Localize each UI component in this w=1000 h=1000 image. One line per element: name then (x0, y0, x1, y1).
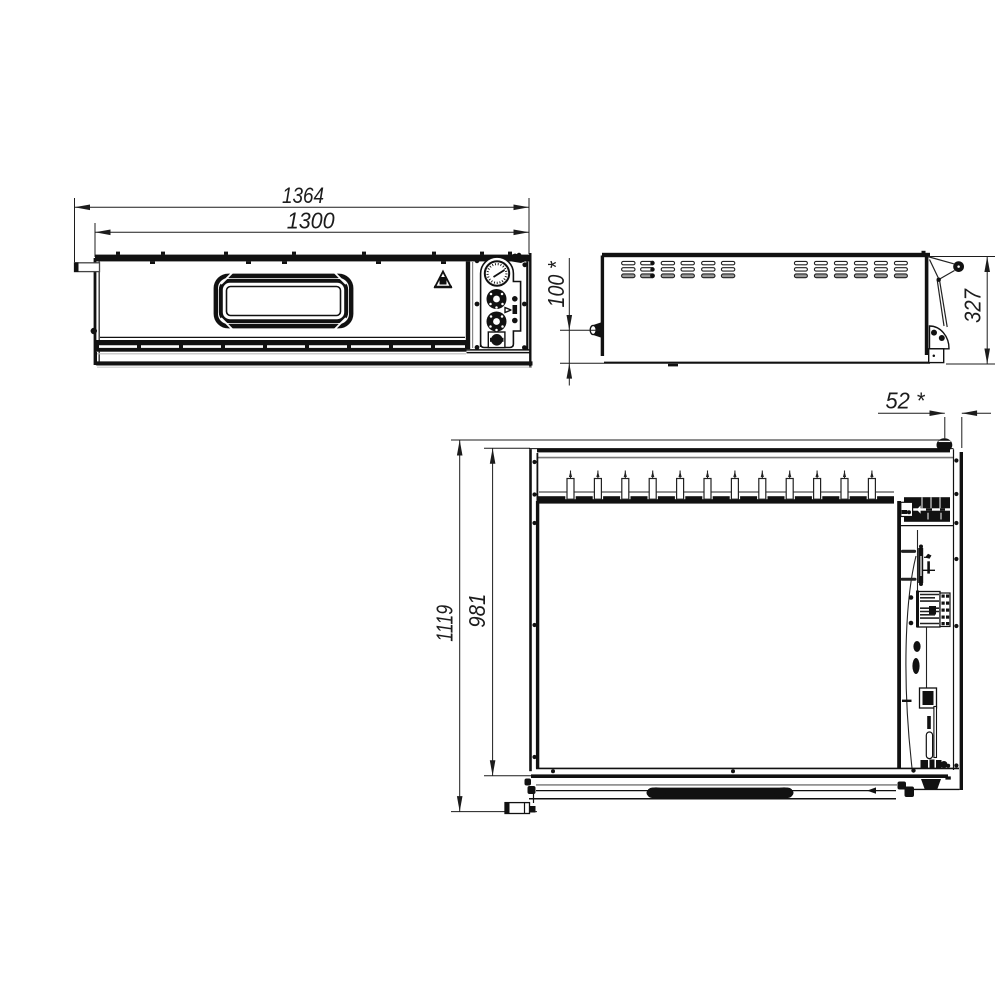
svg-text:1364: 1364 (282, 183, 324, 208)
svg-text:1119: 1119 (432, 605, 458, 642)
svg-text:100 *: 100 * (543, 261, 569, 308)
svg-text:981: 981 (464, 594, 490, 628)
svg-text:1300: 1300 (287, 207, 335, 233)
svg-text:327: 327 (960, 288, 986, 323)
svg-text:52 *: 52 * (886, 388, 926, 414)
